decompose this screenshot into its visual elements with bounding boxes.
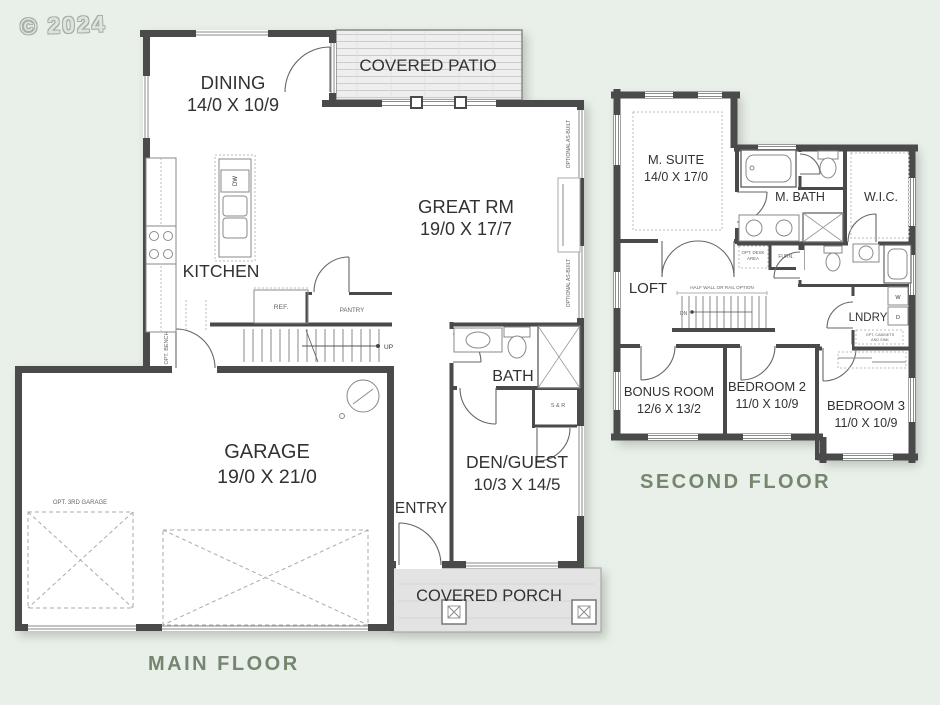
toilet [820, 158, 836, 178]
opt-3rd-garage-label: OPT. 3RD GARAGE [53, 500, 107, 506]
den-guest-label: DEN/GUEST [466, 452, 568, 472]
range [146, 226, 176, 264]
vanity [853, 244, 879, 262]
patio-post [411, 97, 422, 108]
dw-label: DW [233, 176, 239, 186]
den-guest-dims: 10/3 X 14/5 [474, 475, 561, 494]
toilet [826, 253, 840, 271]
opt-bench-label: OPT. BENCH [164, 331, 170, 364]
dining-dims: 14/0 X 10/9 [187, 95, 279, 115]
lndry-label: LNDRY [849, 312, 888, 324]
kitchen-counter [146, 158, 176, 332]
optional-asbuilt-label: OPTIONAL AS-BUILT [566, 120, 572, 168]
floorplan-page: © 2024 [0, 0, 940, 705]
optcab-line1: OPT. CABINETS [866, 333, 895, 337]
furn-label: FURN. [778, 254, 793, 260]
msuite-label: M. SUITE [648, 152, 705, 167]
dn-label: DN [680, 311, 688, 317]
optional-asbuilt-label: OPTIONAL AS-BUILT [566, 259, 572, 307]
ref-label: REF. [274, 304, 289, 311]
vanity [739, 215, 799, 241]
patio-post [455, 97, 466, 108]
entry-label: ENTRY [395, 500, 447, 517]
toilet-tank [824, 246, 842, 253]
bed2-dims: 11/0 X 10/9 [735, 397, 798, 411]
main-floor-title: MAIN FLOOR [148, 653, 300, 675]
bath-label: BATH [492, 368, 533, 385]
optdesk-line2: AREA [747, 256, 759, 261]
msuite-dims: 14/0 X 17/0 [644, 170, 708, 184]
garage-label: GARAGE [224, 441, 310, 463]
optional-fireplace-bump [558, 178, 580, 252]
kitchen-island: DW [215, 155, 255, 261]
garage-dims: 19/0 X 21/0 [217, 466, 317, 488]
optcab-line2: AND SINK [871, 338, 889, 342]
pantry-label: PANTRY [340, 307, 365, 314]
porch-column [572, 600, 596, 624]
great-rm-dims: 19/0 X 17/7 [420, 219, 512, 239]
dryer-label: D [896, 315, 900, 321]
toilet [508, 336, 526, 358]
great-rm-label: GREAT RM [418, 196, 514, 217]
up-label: UP [384, 344, 393, 351]
covered-patio-label: COVERED PATIO [359, 56, 496, 75]
tub [741, 150, 796, 187]
optdesk-line1: OPT. DESK [742, 250, 765, 255]
bonus-label: BONUS ROOM [624, 384, 714, 399]
bed2-label: BEDROOM 2 [728, 379, 806, 394]
mbath-label: M. BATH [775, 190, 825, 204]
washer-label: W [895, 295, 901, 301]
covered-porch-label: COVERED PORCH [416, 587, 562, 605]
main-floor-plan: DW UP [15, 30, 601, 675]
halfwall-label: HALF WALL OR RAIL OPTION [690, 285, 754, 290]
wic-label: W.I.C. [864, 190, 898, 204]
second-floor-plan: DN W D [611, 89, 918, 493]
second-floor-title: SECOND FLOOR [640, 471, 831, 493]
dining-label: DINING [201, 72, 266, 93]
bed3-label: BEDROOM 3 [827, 398, 905, 413]
bed3-dims: 11/0 X 10/9 [834, 416, 897, 430]
loft-label: LOFT [629, 280, 667, 297]
bonus-dims: 12/6 X 13/2 [637, 402, 701, 416]
floorplan-canvas: DW UP [0, 0, 940, 705]
kitchen-label: KITCHEN [183, 261, 260, 281]
shelf-rod-label: S & R [551, 403, 565, 409]
